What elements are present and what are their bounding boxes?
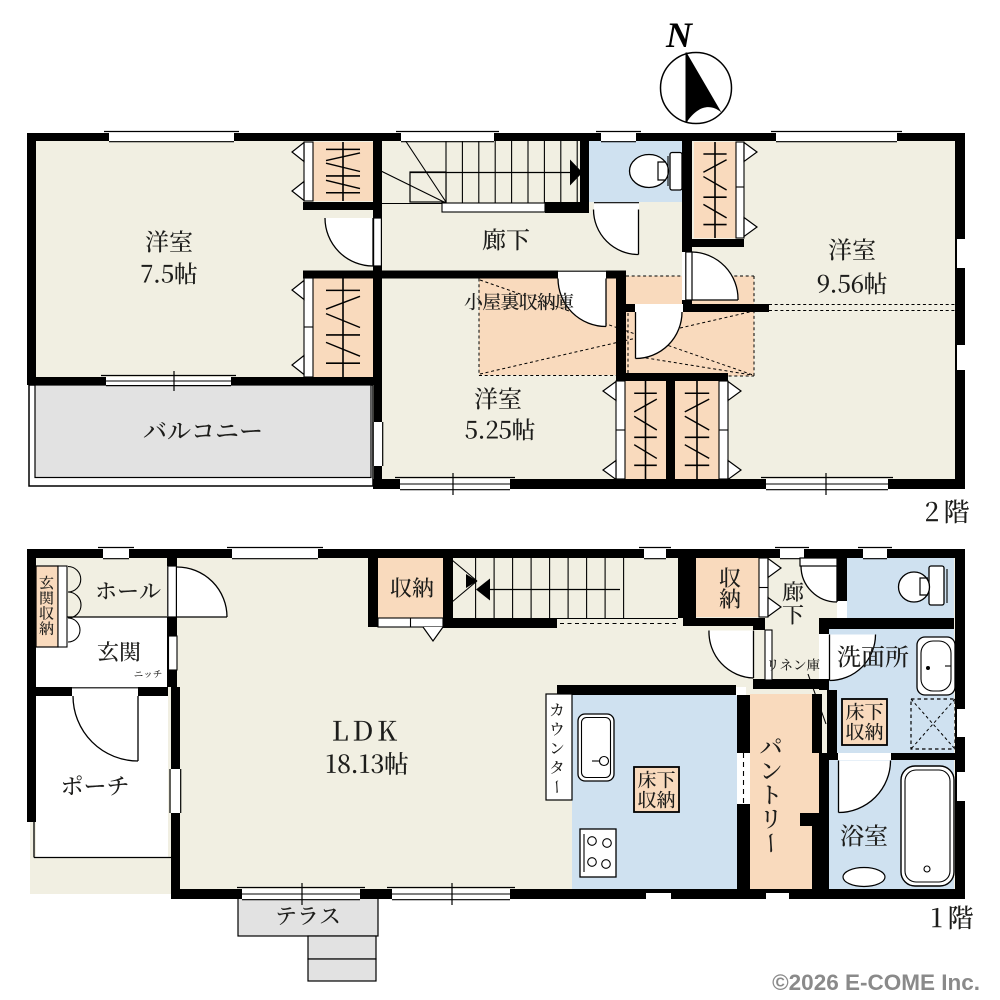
svg-text:©2026 E-COME Inc.: ©2026 E-COME Inc. [772, 970, 980, 995]
svg-text:N: N [665, 15, 694, 55]
